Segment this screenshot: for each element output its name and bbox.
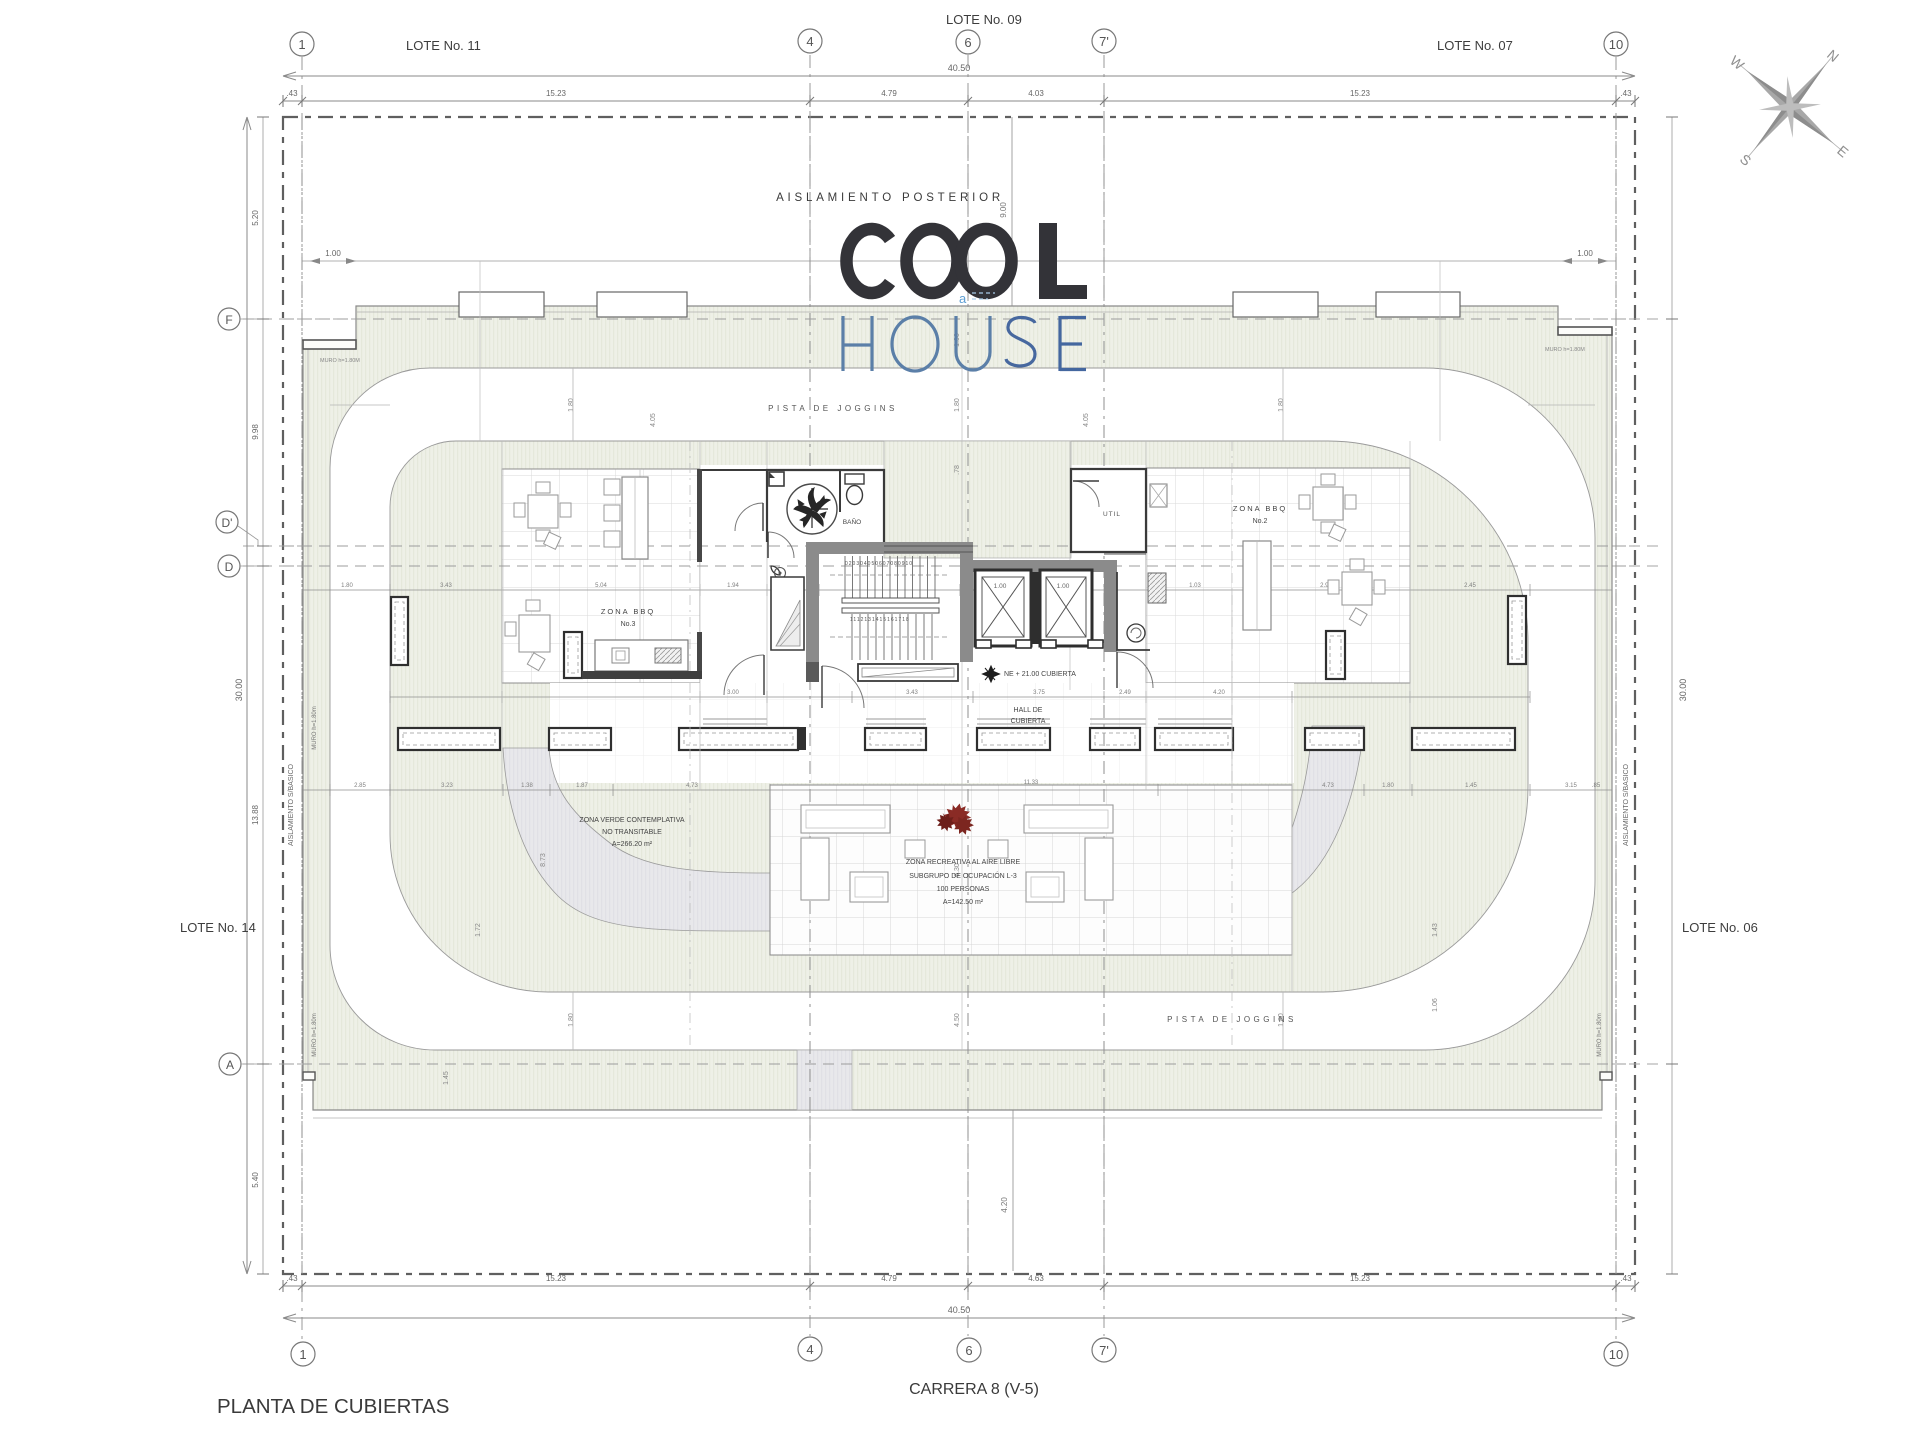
svg-text:ZONA RECREATIVA AL AIRE LIBRE: ZONA RECREATIVA AL AIRE LIBRE bbox=[906, 859, 1021, 866]
svg-text:LOTE No. 07: LOTE No. 07 bbox=[1437, 38, 1513, 53]
svg-text:BAÑO: BAÑO bbox=[843, 517, 861, 526]
svg-text:LOTE No. 06: LOTE No. 06 bbox=[1682, 920, 1758, 935]
svg-text:4.63: 4.63 bbox=[1028, 1274, 1044, 1283]
svg-text:ZONA BBQ: ZONA BBQ bbox=[1233, 504, 1287, 513]
svg-text:NO TRANSITABLE: NO TRANSITABLE bbox=[602, 829, 662, 836]
svg-text:AISLAMIENTO POSTERIOR: AISLAMIENTO POSTERIOR bbox=[776, 192, 1004, 204]
svg-text:1.87: 1.87 bbox=[576, 783, 588, 789]
svg-text:15.23: 15.23 bbox=[546, 89, 567, 98]
svg-text:CARRERA 8 (V-5): CARRERA 8 (V-5) bbox=[909, 1381, 1039, 1398]
svg-text:1.38: 1.38 bbox=[521, 783, 533, 789]
svg-text:2.85: 2.85 bbox=[354, 783, 366, 789]
svg-text:PISTA DE JOGGINS: PISTA DE JOGGINS bbox=[1167, 1015, 1297, 1024]
svg-text:8.73: 8.73 bbox=[540, 853, 547, 867]
svg-text:D: D bbox=[225, 560, 234, 574]
svg-text:4: 4 bbox=[806, 34, 813, 49]
svg-text:1.80: 1.80 bbox=[568, 1013, 575, 1027]
svg-text:40.50: 40.50 bbox=[948, 1305, 971, 1315]
svg-text:9.00: 9.00 bbox=[999, 202, 1008, 218]
svg-text:4.20: 4.20 bbox=[1000, 1197, 1009, 1213]
svg-text:5.20: 5.20 bbox=[251, 210, 260, 226]
svg-text:a: a bbox=[959, 291, 967, 306]
svg-text:A=266.20 m²: A=266.20 m² bbox=[612, 841, 653, 848]
svg-text:3.15: 3.15 bbox=[1565, 783, 1577, 789]
svg-text:30.00: 30.00 bbox=[1678, 679, 1688, 702]
svg-text:4.03: 4.03 bbox=[1028, 89, 1044, 98]
svg-text:LOTE No. 11: LOTE No. 11 bbox=[406, 38, 481, 53]
svg-text:MURO h=1.80m: MURO h=1.80m bbox=[312, 706, 318, 750]
svg-text:100 PERSONAS: 100 PERSONAS bbox=[937, 886, 990, 893]
svg-text:4.20: 4.20 bbox=[1213, 690, 1225, 696]
svg-text:ZONA BBQ: ZONA BBQ bbox=[601, 607, 655, 616]
svg-text:.85: .85 bbox=[1592, 783, 1601, 789]
svg-text:4.79: 4.79 bbox=[881, 1274, 897, 1283]
svg-text:15.23: 15.23 bbox=[1350, 1274, 1371, 1283]
svg-text:.43: .43 bbox=[1620, 89, 1632, 98]
svg-text:11.33: 11.33 bbox=[1024, 780, 1039, 786]
svg-text:No.2: No.2 bbox=[1253, 518, 1268, 525]
svg-text:.43: .43 bbox=[286, 1274, 298, 1283]
svg-text:1: 1 bbox=[299, 1347, 306, 1362]
svg-text:4.79: 4.79 bbox=[881, 89, 897, 98]
svg-text:40.50: 40.50 bbox=[948, 63, 971, 73]
svg-text:1.06: 1.06 bbox=[1432, 998, 1439, 1012]
svg-text:30.00: 30.00 bbox=[234, 679, 244, 702]
svg-text:NE + 21.00 CUBIERTA: NE + 21.00 CUBIERTA bbox=[1004, 671, 1076, 678]
svg-text:4.05: 4.05 bbox=[1083, 413, 1090, 427]
svg-text:HALL DE: HALL DE bbox=[1014, 707, 1043, 714]
svg-text:.43: .43 bbox=[286, 89, 298, 98]
svg-text:10: 10 bbox=[1609, 37, 1623, 52]
svg-text:1.43: 1.43 bbox=[1432, 923, 1439, 937]
svg-text:.43: .43 bbox=[1620, 1274, 1632, 1283]
svg-text:MURO h=1.80m: MURO h=1.80m bbox=[1597, 1013, 1603, 1057]
svg-text:1.80: 1.80 bbox=[1382, 783, 1394, 789]
svg-text:10: 10 bbox=[1609, 1347, 1623, 1362]
svg-text:4: 4 bbox=[806, 1342, 813, 1357]
svg-text:1.03: 1.03 bbox=[1189, 583, 1201, 589]
svg-text:4.50: 4.50 bbox=[954, 1013, 961, 1027]
svg-text:MURO h=1.80M: MURO h=1.80M bbox=[1545, 347, 1585, 353]
svg-text:7': 7' bbox=[1099, 34, 1109, 49]
svg-text:MURO h=1.80M: MURO h=1.80M bbox=[320, 358, 360, 364]
svg-text:.78: .78 bbox=[954, 465, 961, 475]
svg-text:UTIL: UTIL bbox=[1103, 511, 1121, 518]
svg-text:4.73: 4.73 bbox=[1322, 783, 1334, 789]
svg-text:3.23: 3.23 bbox=[441, 783, 453, 789]
svg-text:No.3: No.3 bbox=[621, 621, 636, 628]
svg-text:7': 7' bbox=[1099, 1343, 1109, 1358]
svg-text:MURO h=1.80m: MURO h=1.80m bbox=[312, 1013, 318, 1057]
svg-text:AISLAMIENTO S/BASICO: AISLAMIENTO S/BASICO bbox=[288, 763, 295, 846]
svg-text:1.45: 1.45 bbox=[443, 1071, 450, 1085]
svg-text:15.23: 15.23 bbox=[1350, 89, 1371, 98]
svg-text:1.80: 1.80 bbox=[954, 398, 961, 412]
svg-text:4.05: 4.05 bbox=[650, 413, 657, 427]
svg-text:1.80: 1.80 bbox=[341, 583, 353, 589]
svg-text:1.80: 1.80 bbox=[568, 398, 575, 412]
svg-text:PLANTA DE CUBIERTAS: PLANTA DE CUBIERTAS bbox=[217, 1395, 449, 1418]
svg-text:4.73: 4.73 bbox=[686, 783, 698, 789]
svg-text:2.45: 2.45 bbox=[1464, 583, 1476, 589]
svg-text:1.00: 1.00 bbox=[325, 249, 341, 258]
svg-text:PISTA DE JOGGINS: PISTA DE JOGGINS bbox=[768, 404, 898, 413]
svg-text:1.00: 1.00 bbox=[1057, 583, 1070, 590]
svg-text:020304050607080910: 020304050607080910 bbox=[845, 561, 913, 567]
svg-text:2.49: 2.49 bbox=[1119, 690, 1131, 696]
svg-text:A: A bbox=[226, 1058, 234, 1072]
svg-text:LOTE No. 14: LOTE No. 14 bbox=[180, 920, 256, 935]
svg-text:1.45: 1.45 bbox=[1465, 783, 1477, 789]
svg-text:3.43: 3.43 bbox=[440, 583, 452, 589]
svg-text:3.75: 3.75 bbox=[1033, 690, 1045, 696]
svg-text:SUBGRUPO DE OCUPACIÓN L-3: SUBGRUPO DE OCUPACIÓN L-3 bbox=[909, 871, 1017, 880]
svg-text:15.23: 15.23 bbox=[546, 1274, 567, 1283]
svg-text:6: 6 bbox=[965, 1343, 972, 1358]
svg-text:ZONA VERDE CONTEMPLATIVA: ZONA VERDE CONTEMPLATIVA bbox=[579, 817, 684, 824]
svg-text:1: 1 bbox=[298, 37, 305, 52]
svg-text:F: F bbox=[225, 313, 232, 327]
svg-text:6: 6 bbox=[964, 35, 971, 50]
svg-text:3.43: 3.43 bbox=[906, 690, 918, 696]
svg-text:3.00: 3.00 bbox=[727, 690, 739, 696]
svg-text:1.94: 1.94 bbox=[727, 583, 739, 589]
svg-text:5.04: 5.04 bbox=[595, 583, 607, 589]
svg-text:13.88: 13.88 bbox=[251, 804, 260, 825]
svg-text:1.00: 1.00 bbox=[994, 583, 1007, 590]
svg-text:A=142.50 m²: A=142.50 m² bbox=[943, 899, 984, 906]
svg-text:5.40: 5.40 bbox=[251, 1172, 260, 1188]
svg-text:AISLAMIENTO S/BASICO: AISLAMIENTO S/BASICO bbox=[1623, 763, 1630, 846]
svg-text:1112131415161718: 1112131415161718 bbox=[850, 617, 910, 623]
svg-text:1.80: 1.80 bbox=[1278, 398, 1285, 412]
svg-text:1.00: 1.00 bbox=[1577, 249, 1593, 258]
svg-text:9.98: 9.98 bbox=[251, 424, 260, 440]
svg-text:LOTE No. 09: LOTE No. 09 bbox=[946, 12, 1022, 27]
svg-text:CUBIERTA: CUBIERTA bbox=[1011, 718, 1046, 725]
svg-text:1.72: 1.72 bbox=[475, 923, 482, 937]
svg-text:D': D' bbox=[222, 516, 233, 530]
